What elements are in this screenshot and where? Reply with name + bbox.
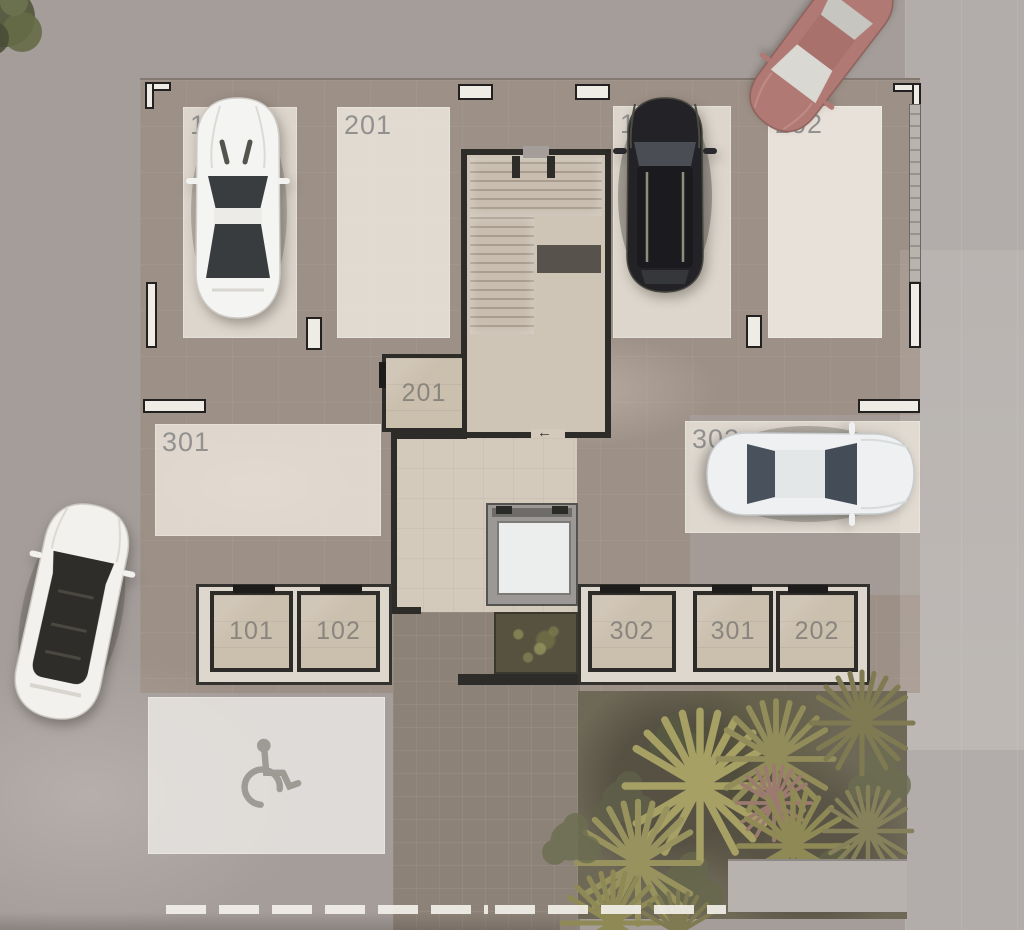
right-pavement — [905, 0, 1024, 930]
elevator — [486, 503, 578, 606]
storage-202-door — [788, 585, 828, 593]
corridor-top-wall — [391, 432, 467, 439]
parking-space-301-label: 301 — [162, 427, 210, 458]
shrub-planter — [494, 612, 578, 674]
storage-room-102-label: 102 — [316, 617, 361, 646]
parking-space-201[interactable]: 201 — [337, 107, 450, 338]
corridor-bottom-stub — [391, 607, 421, 614]
storage-301-door — [712, 585, 752, 593]
wall-strip-left — [146, 282, 157, 348]
storage-room-201-label: 201 — [402, 379, 447, 408]
elevator-door-tab — [496, 506, 512, 514]
storage-102-door — [320, 585, 362, 593]
stair-landing-block — [537, 245, 601, 273]
wall-strip-right — [909, 104, 921, 284]
staircase-lower-flight — [470, 216, 534, 334]
wheelchair-icon — [227, 736, 307, 816]
storage-room-302[interactable]: 302 — [588, 591, 676, 672]
white-sedan-car — [699, 419, 919, 529]
wall-corner-topleft — [145, 82, 154, 109]
storage-room-101-label: 101 — [229, 617, 274, 646]
white-coupe-car — [182, 92, 294, 326]
palm-tree-icon — [811, 672, 913, 774]
storage-101-door — [233, 585, 275, 593]
stair-entry-wall — [547, 156, 555, 178]
storage-room-202-label: 202 — [795, 617, 840, 646]
storage-room-302-label: 302 — [610, 617, 655, 646]
wall-bar-left-mid — [143, 399, 206, 413]
staircase-upper-flight — [470, 158, 602, 216]
storage-room-202[interactable]: 202 — [776, 591, 858, 672]
wall-strip-right-lower — [909, 282, 921, 348]
storage-room-201[interactable]: 201 — [382, 354, 466, 432]
parking-space-accessible[interactable] — [148, 697, 385, 854]
storage-302-door — [600, 585, 640, 593]
core-top-opening — [523, 146, 549, 158]
elevator-cab — [497, 521, 571, 595]
stair-entry-wall — [512, 156, 520, 178]
tree-icon — [0, 0, 60, 77]
storage-room-101[interactable]: 101 — [210, 591, 293, 672]
elevator-door-tab — [552, 506, 568, 514]
white-suv-car — [0, 489, 151, 737]
wall-segment-top — [458, 84, 493, 100]
wall-segment-top — [575, 84, 610, 100]
storage-room-301[interactable]: 301 — [693, 591, 773, 672]
wall-bar-right-mid — [858, 399, 920, 413]
parking-space-301[interactable]: 301 — [155, 424, 381, 536]
storage-room-102[interactable]: 102 — [297, 591, 380, 672]
parking-space-201-label: 201 — [344, 110, 392, 141]
storage-201-door — [379, 362, 386, 388]
kerb-dashes — [166, 905, 488, 914]
storage-room-301-label: 301 — [711, 617, 756, 646]
parking-floor-plan: 101 201 102 202 301 302 ← — [0, 0, 1024, 930]
garden-planter-wall — [728, 859, 907, 912]
column-between-101-201 — [306, 317, 322, 350]
staircase-core — [461, 149, 611, 438]
black-suv-car — [611, 92, 719, 298]
kerb-dashes — [495, 905, 726, 914]
column-between-102-202 — [746, 315, 762, 348]
